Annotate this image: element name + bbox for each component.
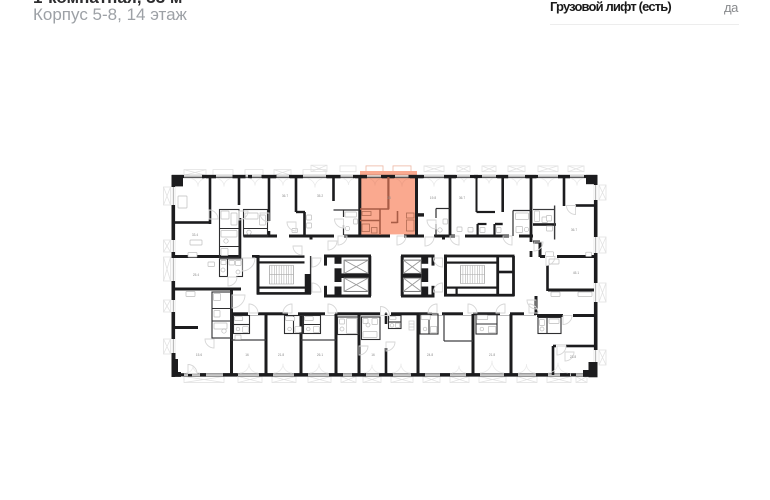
svg-text:36.7: 36.7 <box>459 196 465 200</box>
svg-text:35.2: 35.2 <box>317 194 323 198</box>
svg-text:33.4: 33.4 <box>192 233 198 237</box>
svg-text:36.7: 36.7 <box>282 194 288 198</box>
svg-text:36.7: 36.7 <box>571 228 577 232</box>
svg-text:23.8: 23.8 <box>570 355 576 359</box>
svg-text:24.8: 24.8 <box>427 353 433 357</box>
svg-text:26.1: 26.1 <box>317 353 323 357</box>
svg-text:45.1: 45.1 <box>573 271 579 275</box>
svg-text:19.8: 19.8 <box>430 196 436 200</box>
svg-text:16: 16 <box>245 353 249 357</box>
svg-text:21.8: 21.8 <box>489 353 495 357</box>
svg-text:25.4: 25.4 <box>193 273 199 277</box>
svg-text:15.6: 15.6 <box>196 353 202 357</box>
svg-text:16: 16 <box>371 353 375 357</box>
svg-text:33: 33 <box>387 196 391 200</box>
svg-text:21.8: 21.8 <box>278 353 284 357</box>
